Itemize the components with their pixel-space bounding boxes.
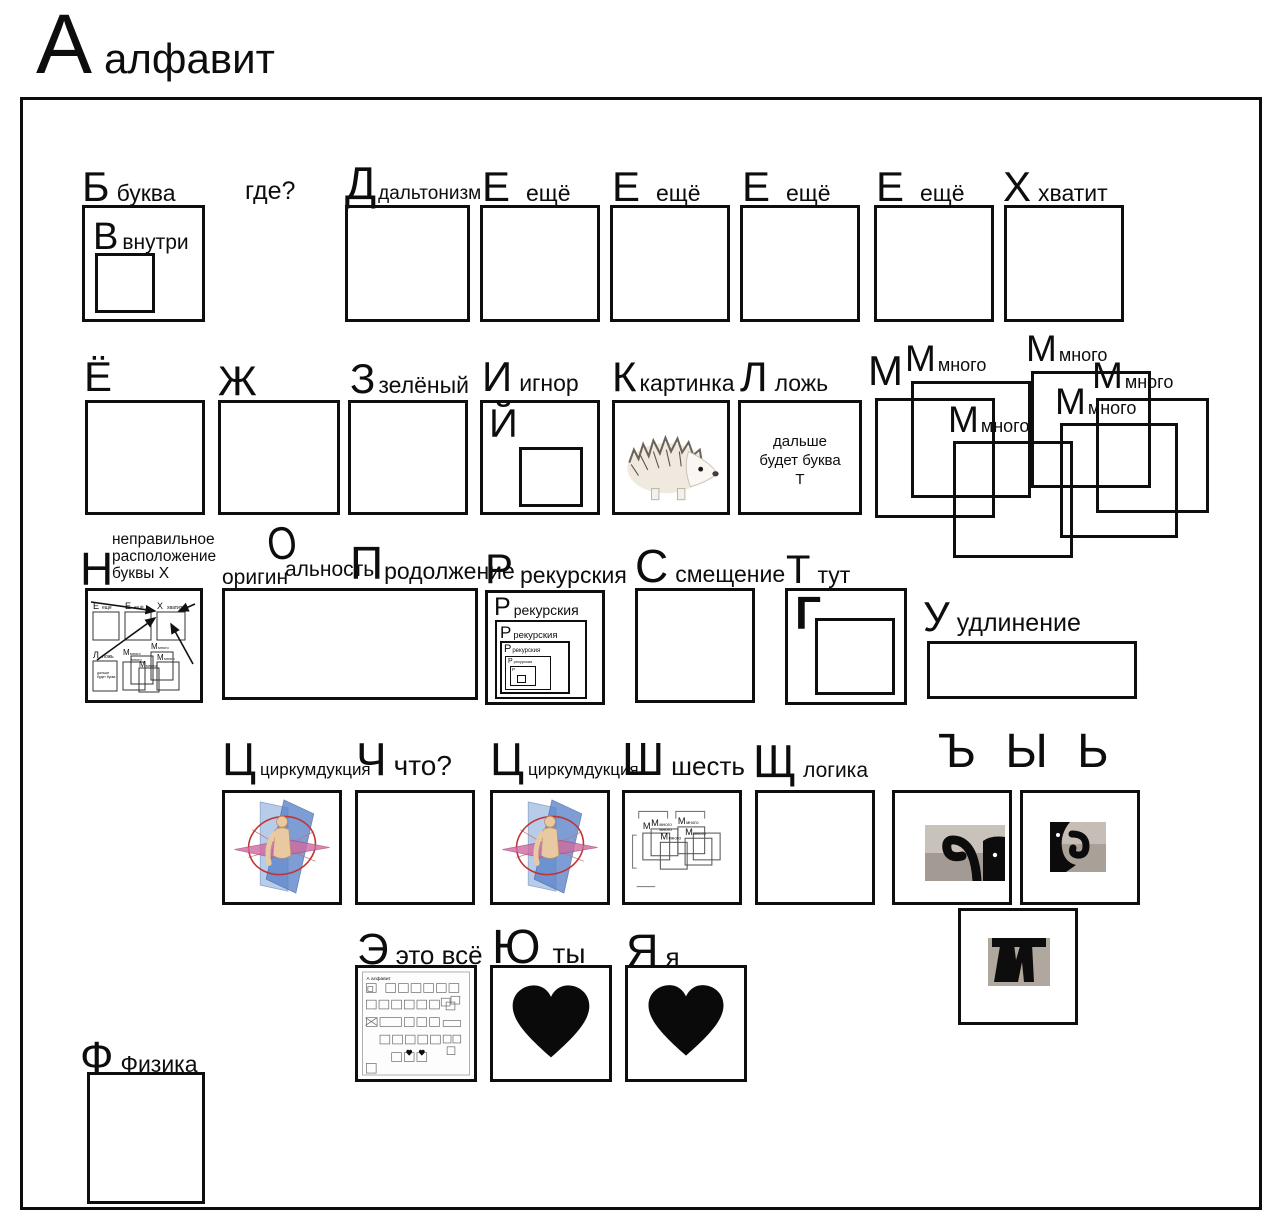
recursion-box-5: Р (510, 666, 536, 686)
cell-n-letter: Н (80, 546, 113, 592)
svg-text:М: М (678, 816, 686, 826)
cell-s-box (635, 588, 755, 703)
gde-text: где? (245, 177, 295, 206)
hedgehog-eye (698, 467, 703, 472)
cell-ts1-label: Ц циркумдукция (222, 736, 371, 782)
svg-text:много: много (130, 651, 142, 656)
cell-e1-label: Е ещё (482, 166, 571, 208)
cell-yo-label: Ё (84, 356, 112, 398)
cell-ch-label: Ч что? (356, 736, 452, 782)
cell-e2-label: Е ещё (612, 166, 701, 208)
cell-zh-box (218, 400, 340, 515)
cell-k-label: К картинка (612, 356, 735, 398)
cat-eye (993, 853, 997, 857)
recursion-label-4: Р рекурския (504, 644, 540, 655)
recursion-box-6 (517, 675, 526, 683)
cell-shch-box (755, 790, 875, 905)
circumduction-image-1 (228, 796, 336, 899)
whole-alphabet-mini-image: А алфавит (361, 971, 471, 1076)
page-title: А алфавит (36, 2, 275, 86)
heart-icon-ya (641, 977, 731, 1063)
cell-ch-box (355, 790, 475, 905)
hedgehog-image (620, 410, 722, 506)
svg-text:много: много (669, 835, 682, 840)
cell-s-label: С смещение (635, 543, 785, 589)
cat-photo-yery (1050, 822, 1106, 872)
cell-zh-label: Ж (218, 360, 257, 402)
cell-u-label: У удлинение (923, 596, 1081, 638)
cell-e4-box (874, 205, 994, 322)
svg-text:М: М (685, 827, 693, 837)
cell-u-box (927, 641, 1137, 699)
cell-d-box (345, 205, 470, 322)
svg-text:М: М (123, 648, 130, 657)
svg-text:М: М (643, 821, 651, 831)
cat-eye (1056, 833, 1060, 837)
cell-l-inner-text: дальше будет буква Т (744, 432, 856, 489)
cell-m-label-3: М много (948, 401, 1029, 438)
title-letter: А (36, 2, 92, 86)
cell-i-label: И игнор (482, 356, 579, 398)
cell-n-word: неправильное расположение буквы Х (112, 531, 216, 582)
cell-v-label: В внутри (93, 218, 189, 256)
cell-e1-box (480, 205, 600, 322)
cell-m-letter: М (868, 350, 903, 392)
cell-v-box (95, 253, 155, 313)
recursion-label-6: Р (512, 668, 515, 673)
svg-text:ещё: ещё (102, 605, 112, 611)
svg-text:Х: Х (157, 601, 163, 611)
cell-i-inner-box (519, 447, 583, 507)
cat-photo-soft-sign (988, 938, 1050, 986)
cell-m-box-6 (1096, 398, 1209, 513)
cell-shch-label: Щ логика (753, 738, 868, 784)
cell-i-inner-letter: Й (489, 402, 518, 447)
svg-text:М: М (151, 642, 158, 651)
svg-text:много: много (693, 831, 706, 836)
svg-text:много: много (158, 645, 170, 650)
wrong-placement-mini-diagram: Е ещё Е ещё Х хватит Л ложь дальше будет… (89, 592, 199, 699)
heart-icon-yu (505, 977, 597, 1065)
cell-r-box: Р рекурския Р рекурския Р рекурския Р ре… (485, 590, 605, 705)
recursion-box-4: Р рекурския Р (505, 656, 551, 690)
svg-text:Е: Е (125, 601, 131, 611)
cell-m-label-6: М много (1092, 357, 1173, 394)
cell-f-box (87, 1072, 205, 1204)
cell-b-label: Б буква (82, 166, 176, 208)
svg-text:М: М (157, 653, 164, 662)
cell-d-label: Д дальтонизм (345, 160, 481, 206)
cell-h-label: Х хватит (1003, 166, 1108, 208)
svg-text:много: много (686, 820, 699, 825)
svg-text:М: М (660, 831, 668, 841)
svg-text:М: М (651, 818, 659, 828)
cat-photo-hard-sign (925, 825, 1005, 881)
cell-t-label: Т тут (786, 550, 850, 590)
recursion-box-2: Р рекурския Р рекурския Р рекурския Р (495, 620, 587, 699)
cell-l-label: Л ложь (740, 356, 828, 398)
recursion-label-3: Р рекурския (500, 624, 557, 641)
recursion-label-2: Р рекурския (494, 595, 579, 620)
cell-e2-box (610, 205, 730, 322)
hedgehog-nose (712, 471, 718, 476)
cell-h-box (1004, 205, 1124, 322)
cell-z-label: З зелёный (350, 358, 469, 400)
cell-z-box (348, 400, 468, 515)
svg-text:А алфавит: А алфавит (366, 976, 391, 982)
svg-text:будет буква: будет буква (97, 675, 116, 679)
title-word: алфавит (104, 35, 275, 83)
circumduction-image-2 (496, 796, 604, 899)
cell-r-label: Р рекурския (485, 548, 627, 590)
svg-text:М: М (139, 660, 146, 669)
cell-ts2-label: Ц циркумдукция (490, 736, 639, 782)
cell-e4-label: Е ещё (876, 166, 965, 208)
recursion-label-5: Р рекурския (508, 658, 532, 665)
cell-sh-label: Ш шесть (622, 736, 745, 782)
svg-text:много: много (146, 663, 158, 668)
cell-signs-label: Ъ Ы Ь (938, 728, 1117, 776)
cell-t-inner-box (815, 618, 895, 695)
recursion-box-3: Р рекурския Р рекурския Р (500, 641, 570, 694)
cell-m-label-2: М много (905, 340, 986, 377)
cell-e3-label: Е ещё (742, 166, 831, 208)
cell-o-p-box (222, 588, 478, 700)
six-m-mini-image: М М много много М много М много М много (628, 796, 736, 899)
svg-text:много: много (164, 656, 176, 661)
cell-e3-box (740, 205, 860, 322)
cell-yo-box (85, 400, 205, 515)
